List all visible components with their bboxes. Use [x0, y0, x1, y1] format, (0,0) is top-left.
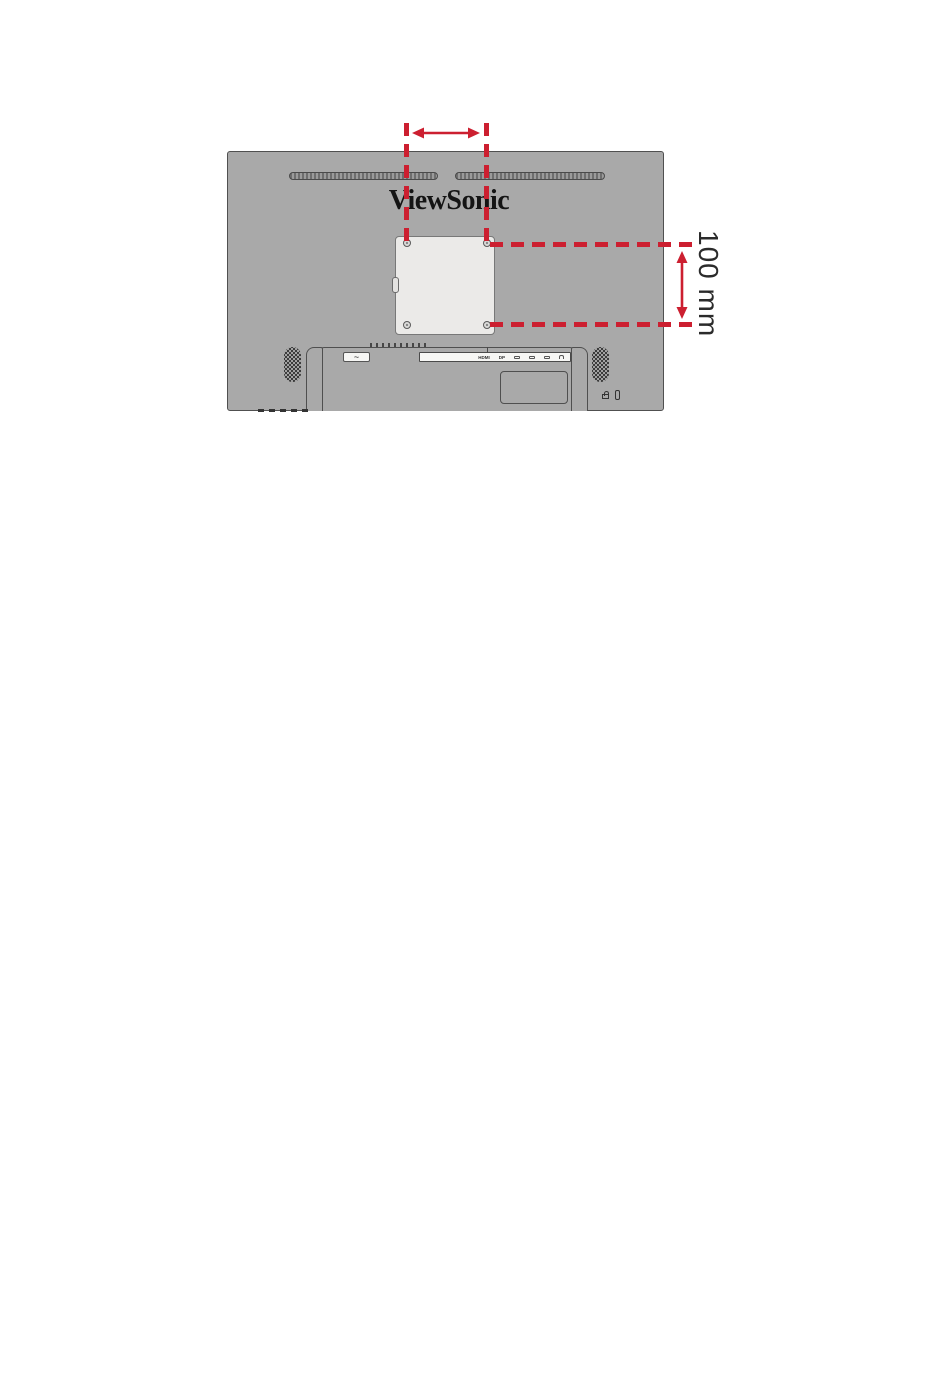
screw-hole-bottom-left: [403, 321, 411, 329]
bottom-port-ticks: [258, 409, 310, 412]
dimension-dash-horizontal-bottom: [490, 322, 692, 327]
audio-out-icon: [559, 355, 564, 359]
ac-power-inlet: ~: [343, 352, 370, 362]
vesa-mount-plate: [395, 236, 495, 335]
dimension-dash-horizontal-top: [490, 242, 692, 247]
brand-logo: ViewSonic: [383, 186, 515, 216]
stand-arm-right: [571, 347, 588, 411]
security-slot-icon: [615, 390, 620, 400]
dimension-dash-vertical-right: [484, 123, 489, 243]
ac-power-symbol: ~: [354, 353, 359, 362]
port-strip: HDMI DP: [419, 352, 571, 362]
top-vent-right: [455, 172, 605, 180]
vent-ticks: [370, 343, 428, 347]
usb-c-port-icon: [514, 356, 520, 359]
plate-release-slot: [392, 277, 399, 293]
hdmi-port-label: HDMI: [478, 355, 490, 360]
kensington-lock-icon: [602, 394, 609, 399]
stand-recess: [500, 371, 568, 404]
speaker-grille-left-icon: [284, 347, 301, 382]
dimension-dash-vertical-left: [404, 123, 409, 243]
dp-port-label: DP: [499, 355, 505, 360]
speaker-grille-right-icon: [592, 347, 609, 382]
vertical-dimension-arrow: [675, 249, 689, 321]
stand-arm-left: [306, 347, 323, 411]
top-vent-left: [289, 172, 438, 180]
vertical-dimension-label: 100 mm: [692, 230, 724, 340]
manual-page: ViewSonic ~ HDMI DP 100 mm: [0, 0, 950, 1387]
usb-port-icon: [544, 356, 550, 359]
horizontal-dimension-arrow: [410, 126, 482, 140]
usb-port-icon: [529, 356, 535, 359]
